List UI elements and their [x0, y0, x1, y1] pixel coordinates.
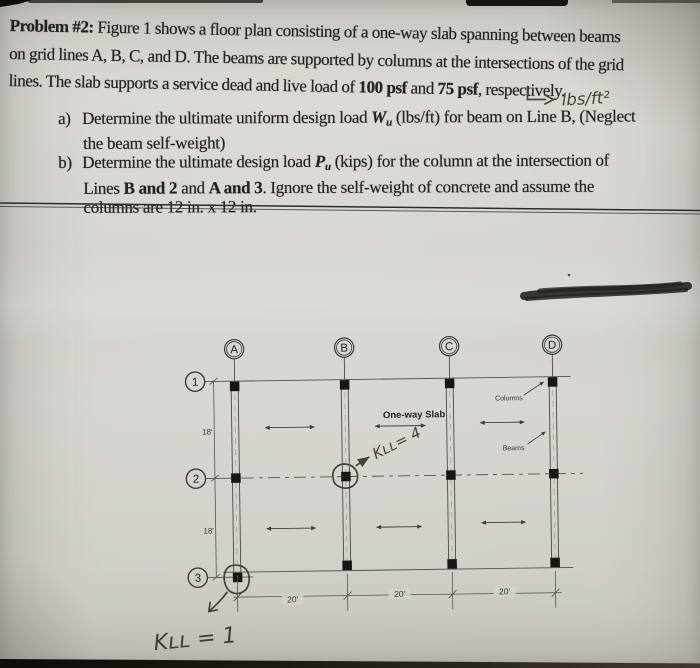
dim-18-upper: 18' [202, 427, 213, 436]
columns-callout: Columns [495, 382, 544, 403]
columns [230, 377, 560, 582]
grid-label-1: 1 [192, 377, 199, 389]
grid-lines-horizontal [204, 376, 584, 577]
hook-arrow-stroke [528, 87, 546, 100]
photo-edge-artifact [28, 0, 263, 3]
grid-bubble-1: 1 [185, 372, 204, 391]
handwritten-kll1: Kʟʟ = 1 [152, 623, 237, 656]
scanned-homework-photo: Problem #2: Figure 1 shows a floor plan … [0, 0, 700, 668]
column-d1 [548, 377, 558, 387]
columns-label: Columns [495, 395, 523, 402]
dim-20-bc: 20' [394, 589, 406, 599]
column-a1 [230, 382, 240, 392]
column-d2 [549, 469, 559, 479]
grid-label-3: 3 [195, 573, 202, 585]
beams-label: Beams [503, 445, 525, 452]
column-b2 [341, 472, 351, 482]
grid-label-c: C [445, 341, 453, 353]
grid-line-2-dashed [242, 473, 583, 478]
slab-bottom-edge [223, 567, 573, 572]
dim-20-ab: 20' [287, 594, 299, 604]
column-b3 [342, 561, 352, 571]
handwritten-kll4: Kʟʟ= 4 [369, 423, 423, 462]
grid-line-1 [205, 376, 570, 381]
grid-bubble-d: D [542, 335, 562, 377]
grid-bubble-3: 3 [188, 568, 207, 587]
pencil-speck [568, 274, 571, 277]
handwritten-psf-unit: lbs/ft² [561, 88, 610, 110]
beams-callout: Beams [502, 432, 545, 453]
separator-rule [0, 203, 700, 214]
dim-18-lower: 18' [203, 526, 214, 535]
beams-leader-line [527, 432, 545, 444]
grid-bubble-b: B [334, 338, 354, 380]
grid-label-a: A [230, 344, 238, 356]
grid-bubble-c: C [439, 336, 459, 378]
a3-pointer-arrow-stroke [209, 592, 228, 611]
grid-label-2: 2 [193, 474, 200, 486]
grid-line-3 [208, 577, 253, 578]
kll4-arrow [356, 457, 369, 465]
handwritten-units-note [528, 87, 554, 105]
bottom-dimension: 20' 20' 20' [233, 571, 561, 613]
column-c1 [445, 379, 455, 389]
grid-bubbles-letters: A B C D [224, 335, 562, 381]
column-c2 [446, 470, 456, 480]
photo-edge-artifact [612, 0, 700, 3]
grid-label-b: B [340, 343, 348, 355]
floor-plan-group: A B C D [148, 335, 585, 657]
grid-bubble-a: A [224, 339, 244, 381]
one-way-slab-label: One-way Slab [383, 409, 446, 421]
dim-20-cd: 20' [499, 586, 511, 596]
pencil-scribble [524, 274, 688, 299]
floor-plan-figure: lbs/ft² [0, 0, 700, 668]
left-dimension: 18' 18' [201, 378, 220, 581]
column-d3 [550, 558, 560, 568]
column-c3 [447, 559, 457, 569]
grid-label-d: D [548, 340, 556, 352]
grid-bubble-2: 2 [186, 469, 205, 488]
photo-edge-artifact [466, 0, 568, 6]
columns-leader-line [524, 382, 544, 395]
column-a2 [231, 473, 241, 483]
grid-bubbles-numbers: 1 2 3 [185, 372, 208, 587]
column-b1 [340, 380, 350, 390]
